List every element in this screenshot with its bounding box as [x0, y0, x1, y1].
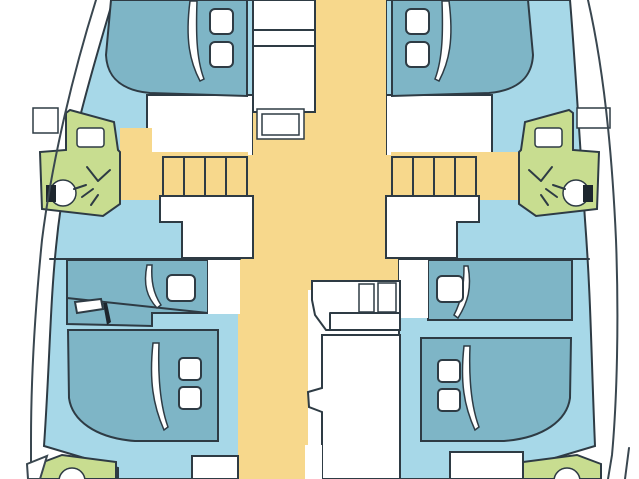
companionway-stairs-port	[163, 157, 247, 196]
boarding-step-starboard	[577, 108, 610, 128]
wardrobe-area-starboard	[386, 95, 492, 157]
pillow	[438, 389, 460, 411]
pillow	[179, 358, 201, 380]
boarding-step-port	[33, 108, 58, 133]
pillow	[167, 275, 195, 301]
aft-double-berth-starboard	[421, 338, 571, 441]
wardrobe-area-port	[147, 95, 253, 157]
forward-double-berth-starboard	[392, 0, 533, 96]
mid-berth-starboard	[428, 260, 572, 320]
pillow	[179, 387, 201, 409]
galley-unit	[305, 281, 400, 479]
sink-starboard	[535, 128, 562, 147]
pillow	[437, 276, 463, 302]
floorplan-canvas	[0, 0, 639, 479]
yacht-floorplan	[0, 0, 639, 479]
sink-basin	[378, 283, 396, 312]
galley-base	[305, 445, 322, 479]
pillow	[210, 42, 233, 67]
toilet-tank-starboard	[583, 185, 593, 202]
pillow	[438, 360, 460, 382]
aft-entry-starboard	[450, 452, 523, 479]
sink-port	[77, 128, 104, 147]
pillow	[406, 9, 429, 34]
forward-double-berth-port	[106, 0, 247, 96]
pillow	[210, 9, 233, 34]
side-unit-starboard	[399, 260, 428, 318]
aft-entry-port	[192, 456, 238, 479]
aft-double-berth-port	[68, 330, 218, 441]
companionway-stairs-starboard	[392, 157, 476, 196]
side-unit-port	[208, 260, 240, 314]
pillow	[406, 42, 429, 67]
step-box-inner	[262, 114, 299, 135]
sink-basin	[359, 284, 374, 312]
